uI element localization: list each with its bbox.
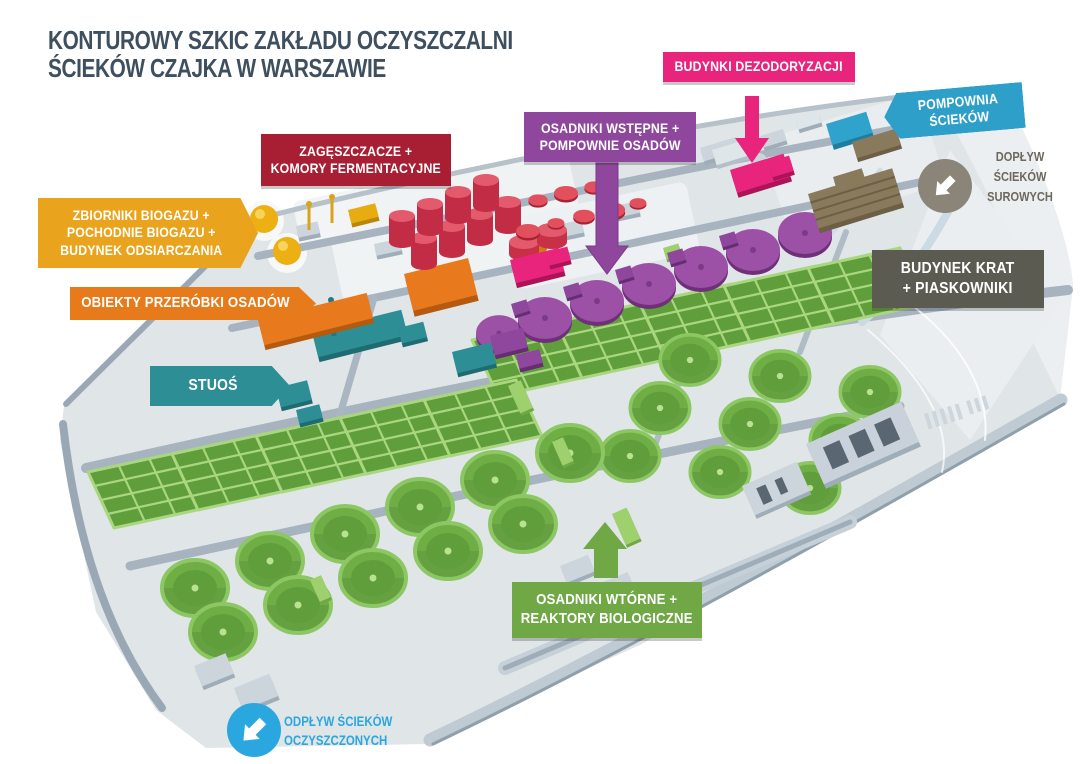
treated-outflow-icon xyxy=(227,703,281,757)
label-budynki-dezodoryzacji: BUDYNKI DEZODORYZACJI xyxy=(663,52,855,82)
label-osadniki-wtorne: OSADNIKI WTÓRNE + REAKTORY BIOLOGICZNE xyxy=(512,582,702,638)
note-odplyw-sciekow-oczyszczonych: ODPŁYW ŚCIEKÓW OCZYSZCZONYCH xyxy=(284,712,392,750)
label-osadniki-wstepne: OSADNIKI WSTĘPNE + POMPOWNIE OSADÓW xyxy=(524,112,696,162)
label-budynek-krat: BUDYNEK KRAT + PIASKOWNIKI xyxy=(872,250,1044,308)
label-zageszczacze: ZAGĘSZCZACZE + KOMORY FERMENTACYJNE xyxy=(261,134,451,186)
label-stuos: STUOŚ xyxy=(150,366,290,406)
note-doplyw-sciekow-surowych: DOPŁYW ŚCIEKÓW SUROWYCH xyxy=(978,147,1063,207)
raw-sewage-inflow-icon xyxy=(918,159,972,213)
page-title: KONTUROWY SZKIC ZAKŁADU OCZYSZCZALNI ŚCI… xyxy=(48,26,513,82)
label-zbiorniki-biogazu: ZBIORNIKI BIOGAZU + POCHODNIE BIOGAZU + … xyxy=(38,198,258,268)
title-line: ŚCIEKÓW CZAJKA W WARSZAWIE xyxy=(48,53,386,83)
label-obiekty-przerobki-osadow: OBIEKTY PRZERÓBKI OSADÓW xyxy=(70,287,316,320)
title-line: KONTUROWY SZKIC ZAKŁADU OCZYSZCZALNI xyxy=(48,25,513,55)
infographic: KONTUROWY SZKIC ZAKŁADU OCZYSZCZALNI ŚCI… xyxy=(0,0,1080,764)
